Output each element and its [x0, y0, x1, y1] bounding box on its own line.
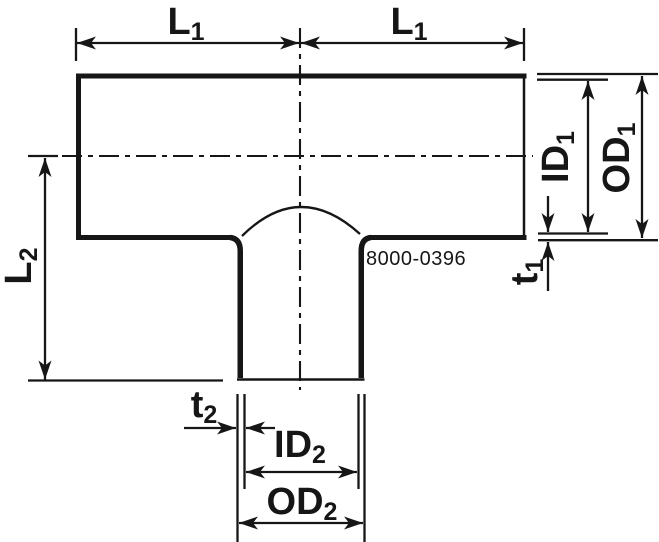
- label-od2: OD2: [267, 481, 338, 526]
- label-id2: ID2: [274, 424, 326, 469]
- label-l1-right: L1: [390, 1, 427, 46]
- label-id1: ID1: [535, 131, 580, 183]
- label-l1-left: L1: [167, 1, 204, 46]
- tee-technical-drawing: L1 L1 L2 ID1 OD1 t1: [0, 0, 659, 542]
- dimension-bottom-side: t2 ID2 OD2: [184, 384, 365, 542]
- dimension-l2: L2: [0, 156, 223, 381]
- branch-left-wall: [230, 238, 240, 379]
- label-od1: OD1: [596, 122, 641, 193]
- label-t1: t1: [504, 259, 549, 286]
- dimension-right-side: ID1 OD1 t1: [504, 74, 658, 291]
- label-l2: L2: [0, 247, 43, 284]
- tee-outline: [79, 76, 525, 380]
- part-number: 8000-0396: [366, 248, 466, 270]
- centerlines: [62, 28, 533, 390]
- label-t2: t2: [191, 384, 218, 429]
- drawing-canvas: L1 L1 L2 ID1 OD1 t1: [0, 0, 659, 542]
